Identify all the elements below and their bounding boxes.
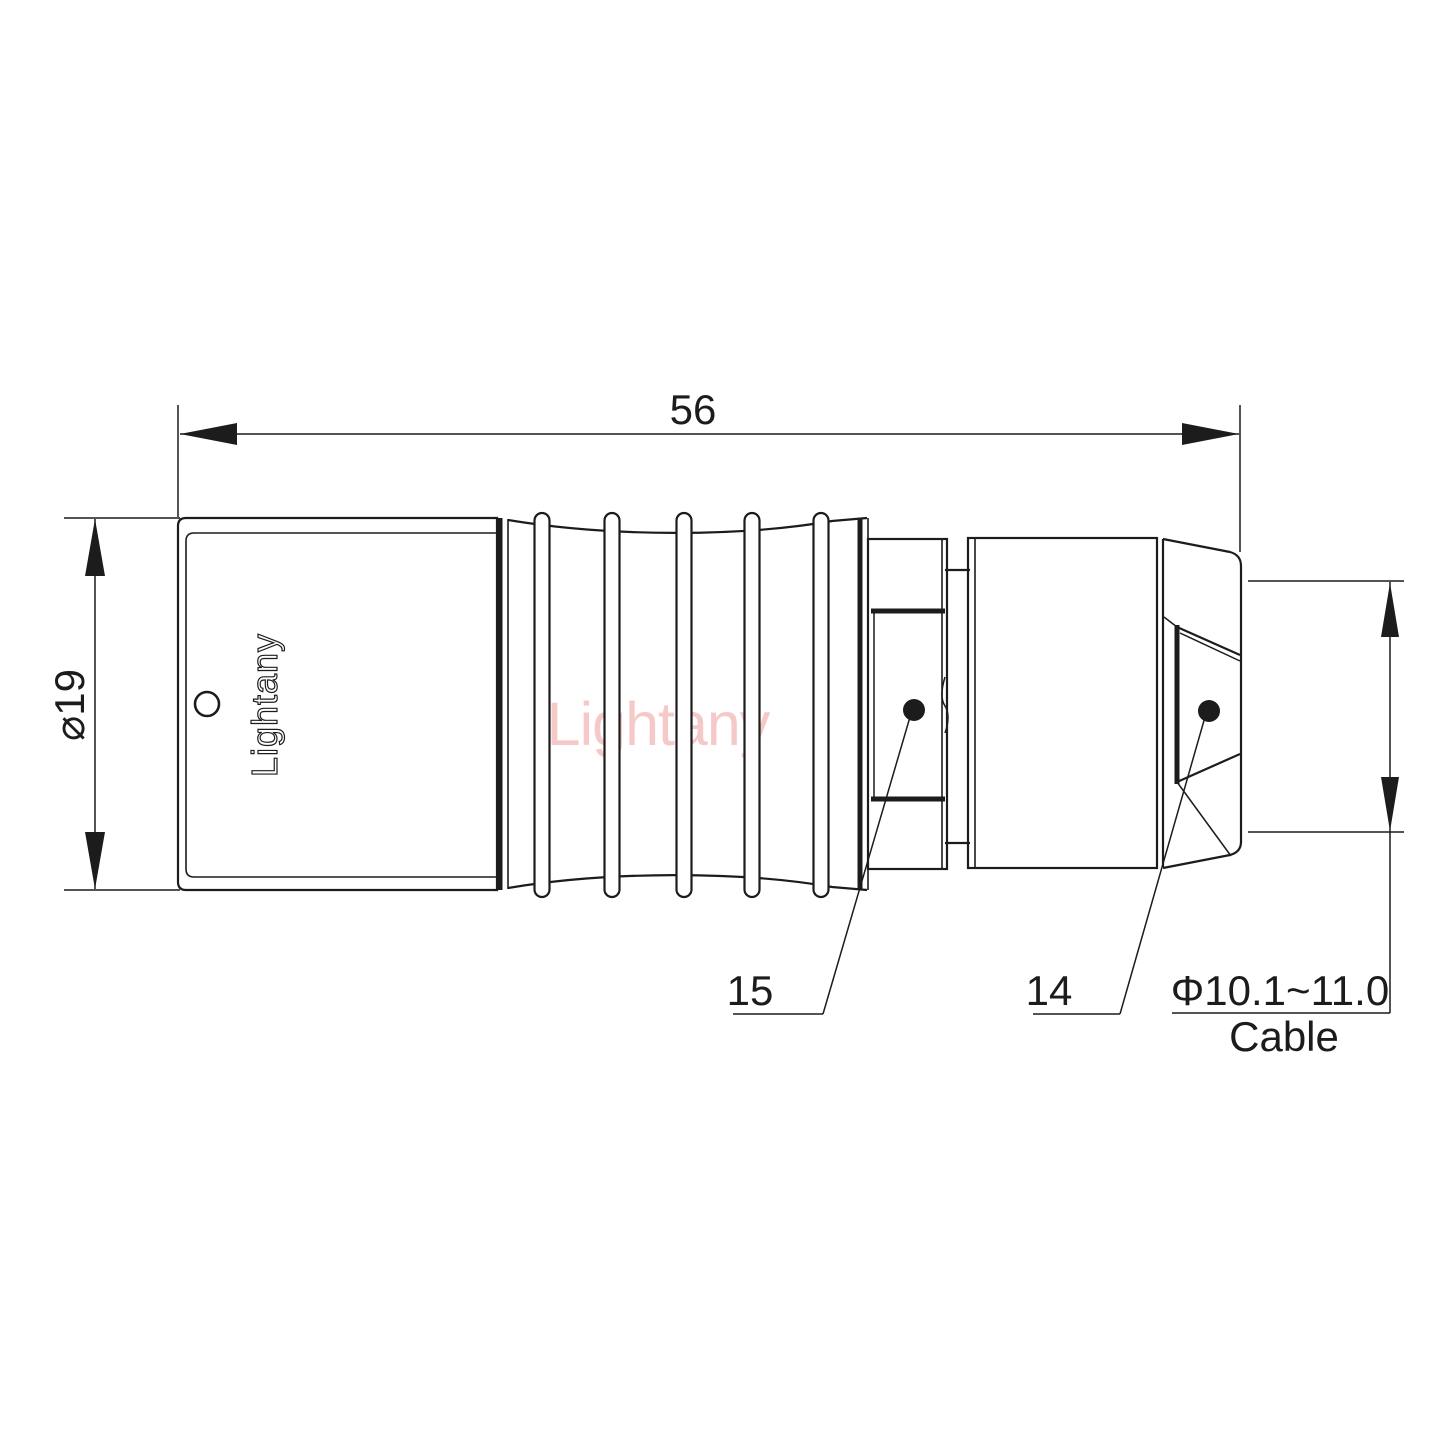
cable-label-text: Cable	[1229, 1013, 1339, 1060]
front-shell: Lightany	[178, 518, 508, 890]
cone-bottom-edge	[1177, 754, 1240, 782]
dim-cable-arrow-bottom	[1381, 777, 1399, 831]
part-15-leader-line	[823, 717, 910, 1014]
dim-19-text: ⌀19	[46, 669, 93, 741]
dim-overall-length: 56	[178, 386, 1240, 552]
shell-logo-text: Lightany	[244, 633, 285, 777]
leader-dot-15	[903, 699, 925, 721]
shell-hole-circle	[195, 692, 219, 716]
dim-cable-arrow-top	[1381, 583, 1399, 637]
leader-dot-14	[1198, 700, 1220, 722]
part-15-text: 15	[727, 967, 774, 1014]
dim-56-arrow-left	[180, 423, 237, 445]
dim-56-text: 56	[670, 386, 717, 433]
dim-shell-diameter: ⌀19	[46, 518, 180, 890]
front-shell-inner-outline	[186, 533, 497, 877]
neck	[945, 570, 970, 843]
cone-top-edge-inner	[1180, 633, 1240, 661]
cone-lower-diagonal	[1177, 782, 1231, 856]
part-14-text: 14	[1026, 967, 1073, 1014]
dim-19-arrow-top	[85, 519, 105, 576]
connector-technical-drawing: Lightany Lightany	[0, 0, 1440, 1440]
front-shell-outer-outline	[178, 518, 497, 890]
coupling-nut	[968, 538, 1241, 868]
watermark-text: Lightany	[547, 690, 771, 758]
boot-rib-3	[677, 513, 692, 897]
dim-56-arrow-right	[1182, 423, 1239, 445]
nut-outline	[968, 538, 1157, 868]
cone-top-edge	[1177, 627, 1240, 655]
boot-rib-2	[605, 513, 620, 897]
cable-range-text: Φ10.1~11.0	[1171, 967, 1389, 1014]
boot-rib-4	[745, 513, 760, 897]
boot-rib-1	[535, 513, 550, 897]
boot-rib-5	[814, 513, 829, 897]
drawing-svg: Lightany Lightany	[0, 0, 1440, 1440]
dim-19-arrow-bottom	[85, 832, 105, 889]
